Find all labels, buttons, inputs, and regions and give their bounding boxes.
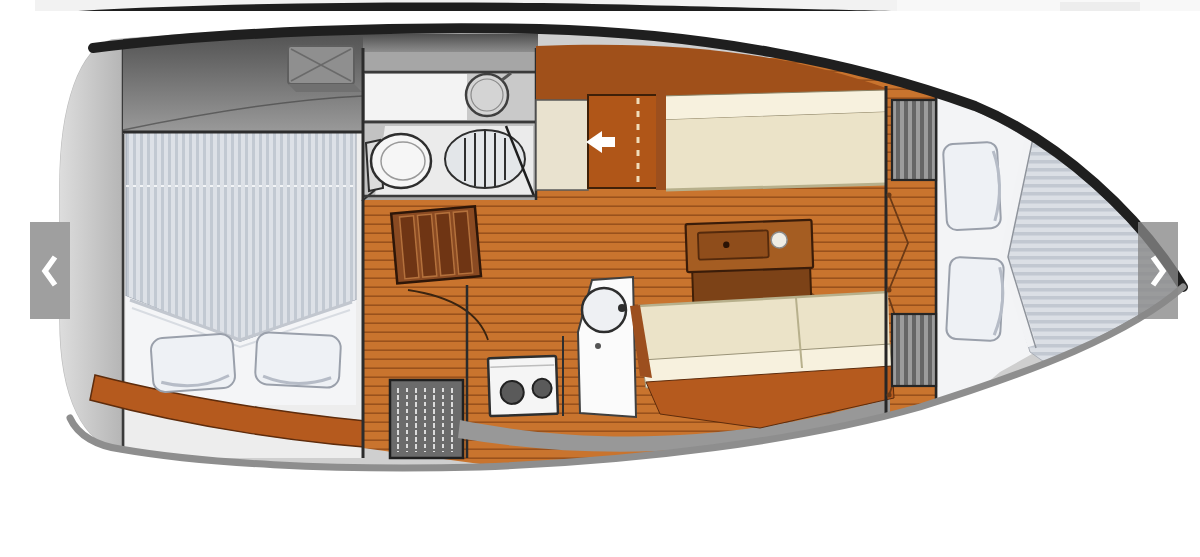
image-carousel bbox=[0, 0, 1200, 557]
forward-locker-bottom bbox=[892, 314, 936, 386]
forward-locker-top bbox=[892, 100, 936, 180]
chevron-right-icon bbox=[1146, 251, 1170, 291]
galley-sink-unit bbox=[578, 277, 636, 417]
starboard-settee bbox=[656, 90, 886, 190]
v-berth-pillow-top bbox=[943, 142, 1002, 231]
carousel-next-button[interactable] bbox=[1138, 222, 1178, 319]
chevron-left-icon bbox=[38, 251, 62, 291]
carousel-prev-button[interactable] bbox=[30, 222, 70, 319]
louvered-locker bbox=[390, 380, 463, 458]
table-drawer bbox=[698, 230, 769, 259]
previous-image-edge bbox=[35, 0, 1200, 11]
deck-hatch bbox=[288, 46, 362, 92]
shower-grate bbox=[445, 130, 525, 188]
head-counter bbox=[365, 74, 467, 120]
v-berth-pillow-bottom bbox=[946, 257, 1005, 342]
aft-berth-pillow-left bbox=[150, 333, 236, 393]
aft-berth-pillow-right bbox=[255, 332, 342, 388]
stove bbox=[488, 356, 558, 416]
boat-floorplan-image bbox=[0, 0, 1200, 557]
companionway-entry bbox=[536, 95, 660, 190]
companionway-steps bbox=[391, 206, 481, 283]
